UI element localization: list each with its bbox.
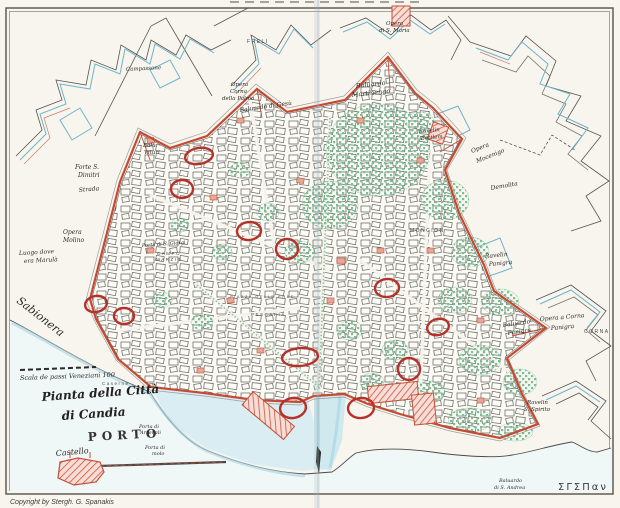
map-label: Opera [63,229,82,236]
map-label: Corna [230,89,247,95]
map-label: FRELI [247,39,269,45]
map-label: Opera [231,82,248,88]
map-label: Ravelin [526,400,548,406]
map-page: Pianta della Cittàdi CandiaPORTOCastello… [0,0,620,508]
map-label: CAMPO [157,251,181,256]
map-label: molo [152,451,164,457]
map-label: MARZIO [156,257,183,262]
map-label: MONCION [410,228,445,234]
map-label: PESCARIA [251,312,286,317]
map-label: Baluardo [498,478,522,484]
map-label: PIAZZA DELLE ERBE [230,294,295,299]
page-fold [314,0,320,508]
map-label: Copyright by Stergh. G. Spanakis [10,499,114,506]
map-label: CORNA [584,329,610,335]
map-label: Caserne [102,381,130,386]
map-label: ΣΓΣΠαν [558,482,608,493]
map-label: di S. Maria [379,28,410,34]
map-label: Forte S. [74,164,99,171]
map-label: di S. Andrea [494,485,525,491]
map-label: Opera [386,21,403,27]
map-label: Molino [62,237,84,244]
map-label: della Palma [222,96,254,102]
map-label: Balu. [142,143,158,149]
map-label: Arsenali [139,430,161,436]
map-label: Vituri [144,150,160,156]
map-label: S. Spirito [524,407,551,413]
candia-map-svg: Pianta della Cittàdi CandiaPORTOCastello… [0,0,620,508]
map-label: Dimitri [77,172,100,179]
